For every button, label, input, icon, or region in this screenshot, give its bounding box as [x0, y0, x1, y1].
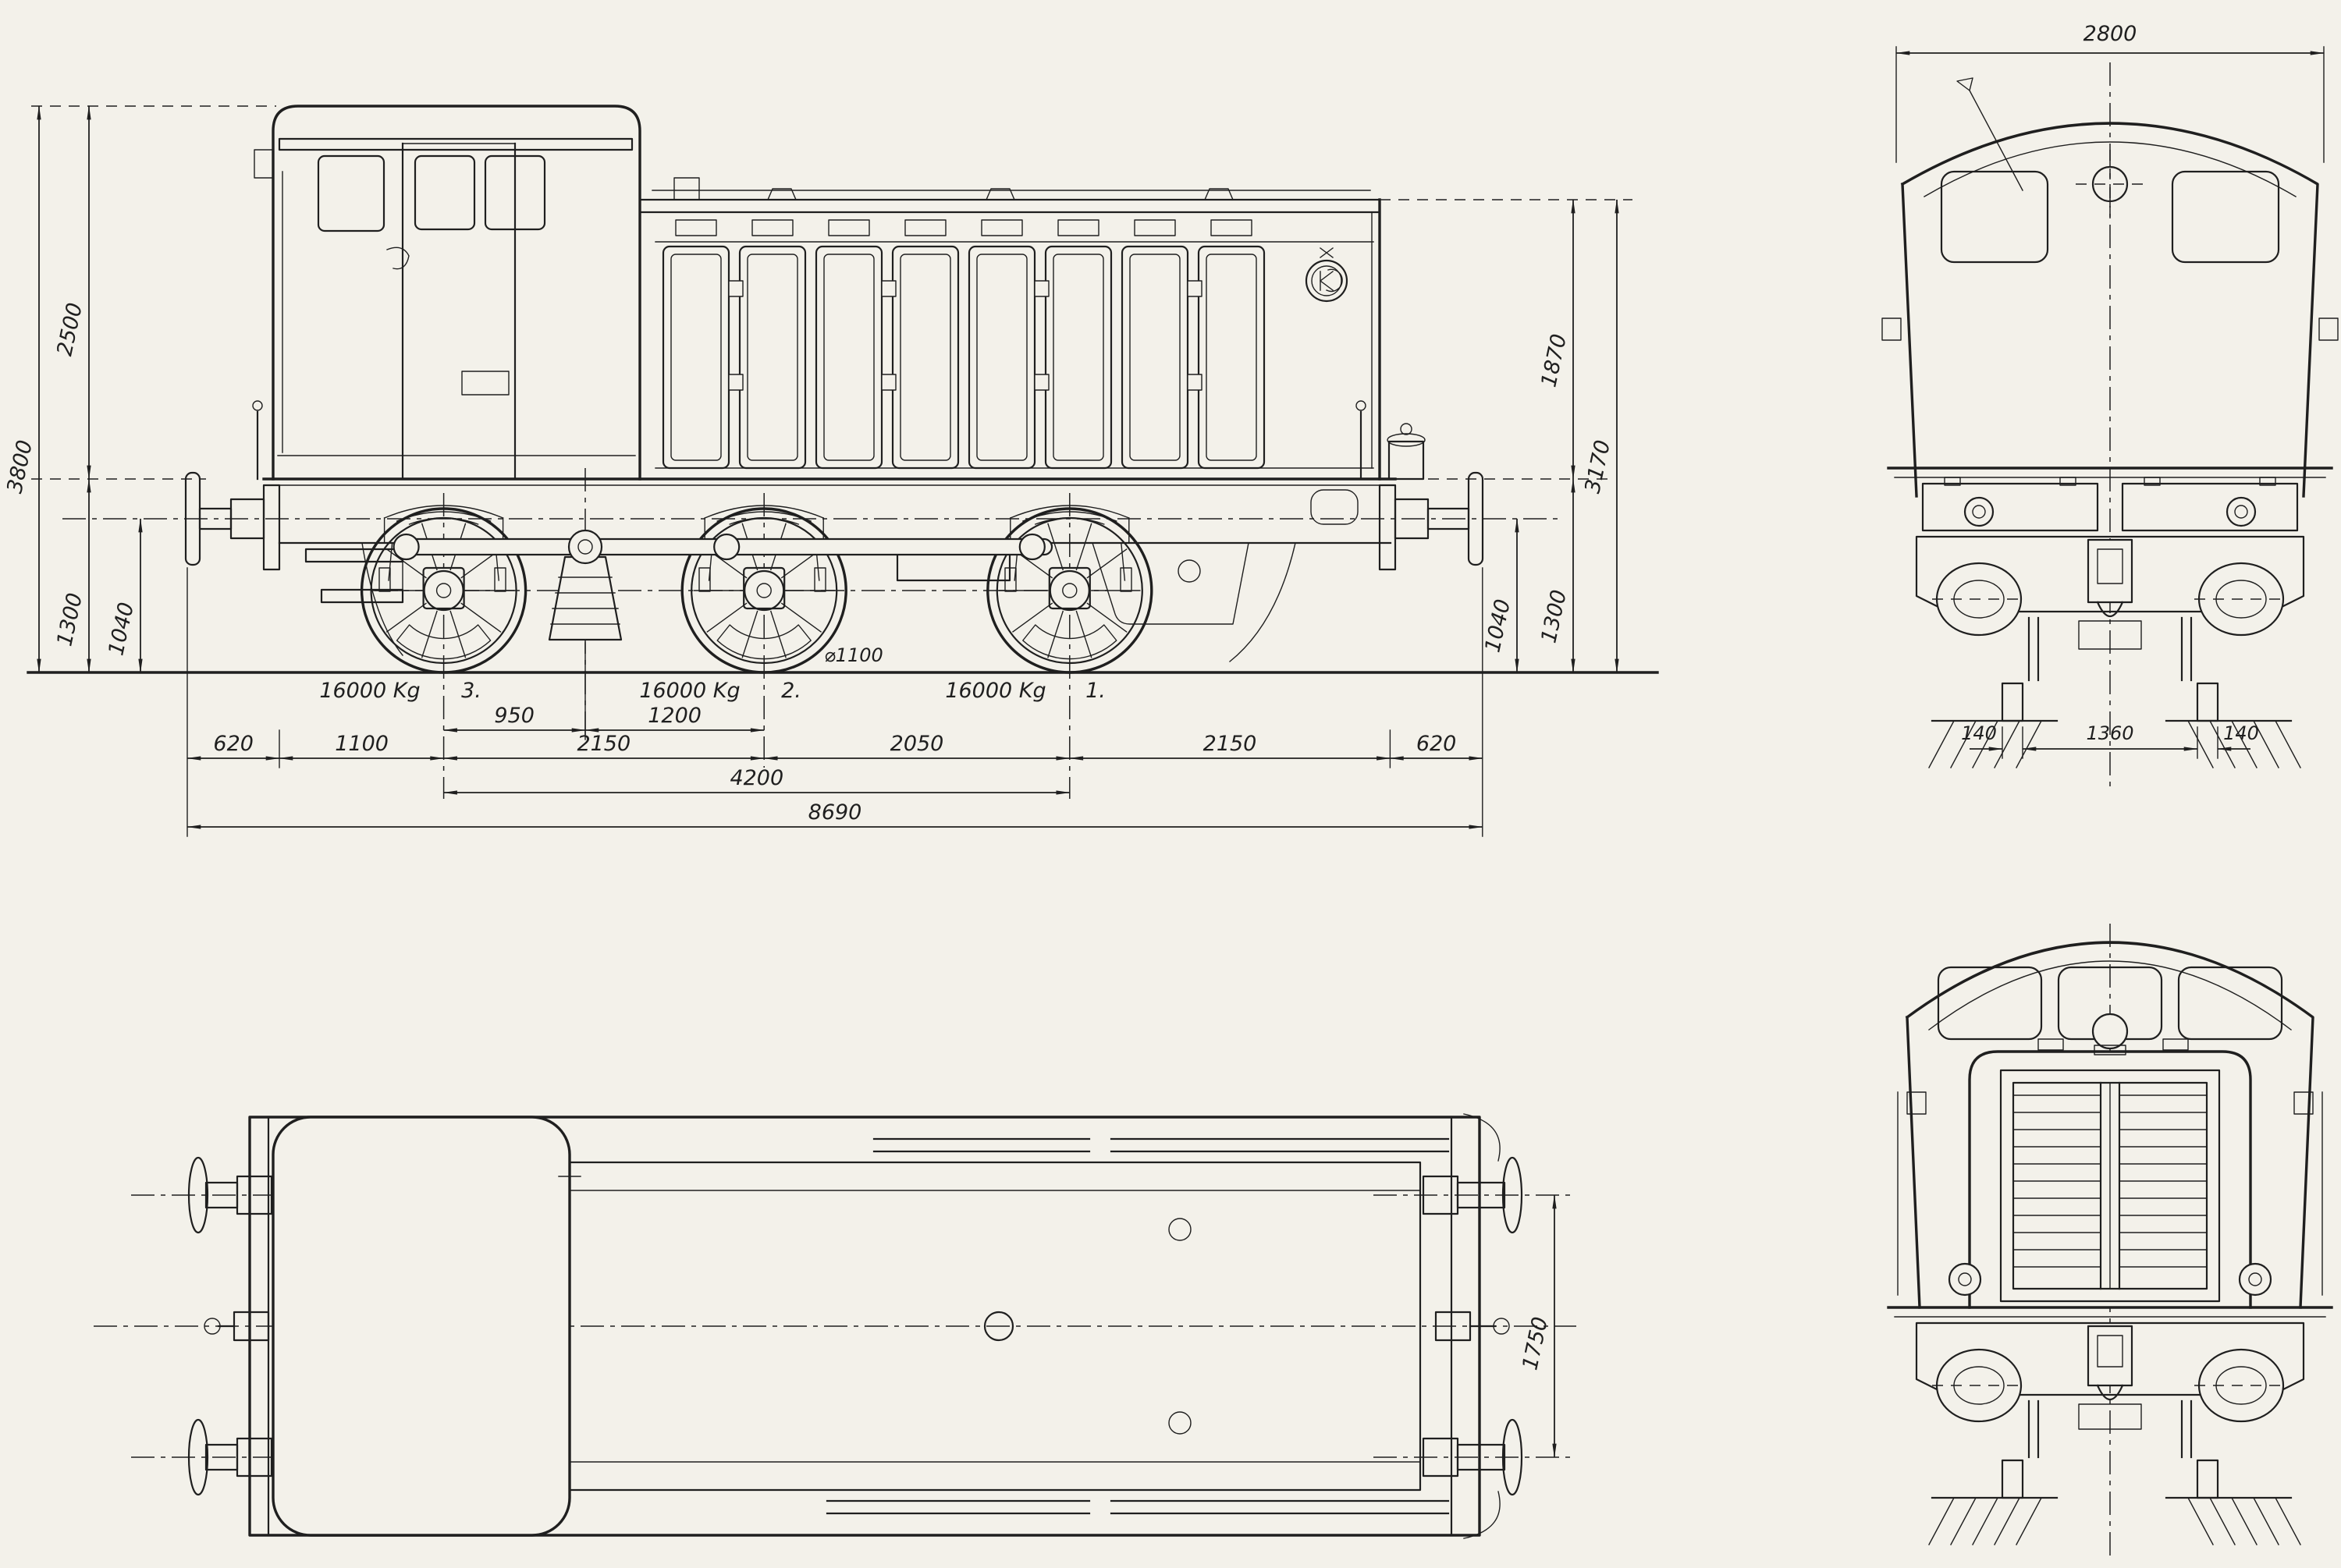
locomotive-blueprint: 3800 2500 1300 1040 1040 1870 1300 3170 [0, 0, 2341, 1568]
dim-2150-rear: 2150 [577, 732, 631, 756]
axle-load-1-weight: 16000 Kg [945, 679, 1046, 703]
buffer-lamp-left [1965, 498, 1993, 526]
dim-950: 950 [494, 704, 535, 728]
dim-1100: 1100 [335, 732, 389, 756]
axle-number-2: 2. [781, 679, 801, 703]
dim-140-left: 140 [1961, 722, 1997, 744]
dim-2800: 2800 [2083, 22, 2137, 46]
dim-2050: 2050 [890, 732, 944, 756]
plan-cab-roof [273, 1117, 570, 1535]
axle-load-3-weight: 16000 Kg [319, 679, 420, 703]
marker-lamp-right [2240, 1264, 2271, 1295]
dim-8690: 8690 [808, 800, 862, 825]
end-rad-headlamp [2093, 1014, 2127, 1048]
axle-number-3: 3. [461, 679, 481, 703]
dim-2150-front: 2150 [1203, 732, 1257, 756]
dim-1360: 1360 [2086, 722, 2133, 744]
dim-620-front: 620 [1416, 732, 1457, 756]
drawing-sheet: 3800 2500 1300 1040 1040 1870 1300 3170 [0, 0, 2341, 1568]
dim-140-right: 140 [2223, 722, 2259, 744]
axle-load-2-weight: 16000 Kg [639, 679, 740, 703]
marker-lamp-left [1949, 1264, 1980, 1295]
axle-number-1: 1. [1085, 679, 1106, 703]
wheel-diameter-label: ⌀1100 [824, 644, 883, 666]
buffer-lamp-right [2227, 498, 2255, 526]
dim-4200: 4200 [730, 766, 783, 790]
dim-620-rear: 620 [213, 732, 254, 756]
dim-1200: 1200 [648, 704, 702, 728]
